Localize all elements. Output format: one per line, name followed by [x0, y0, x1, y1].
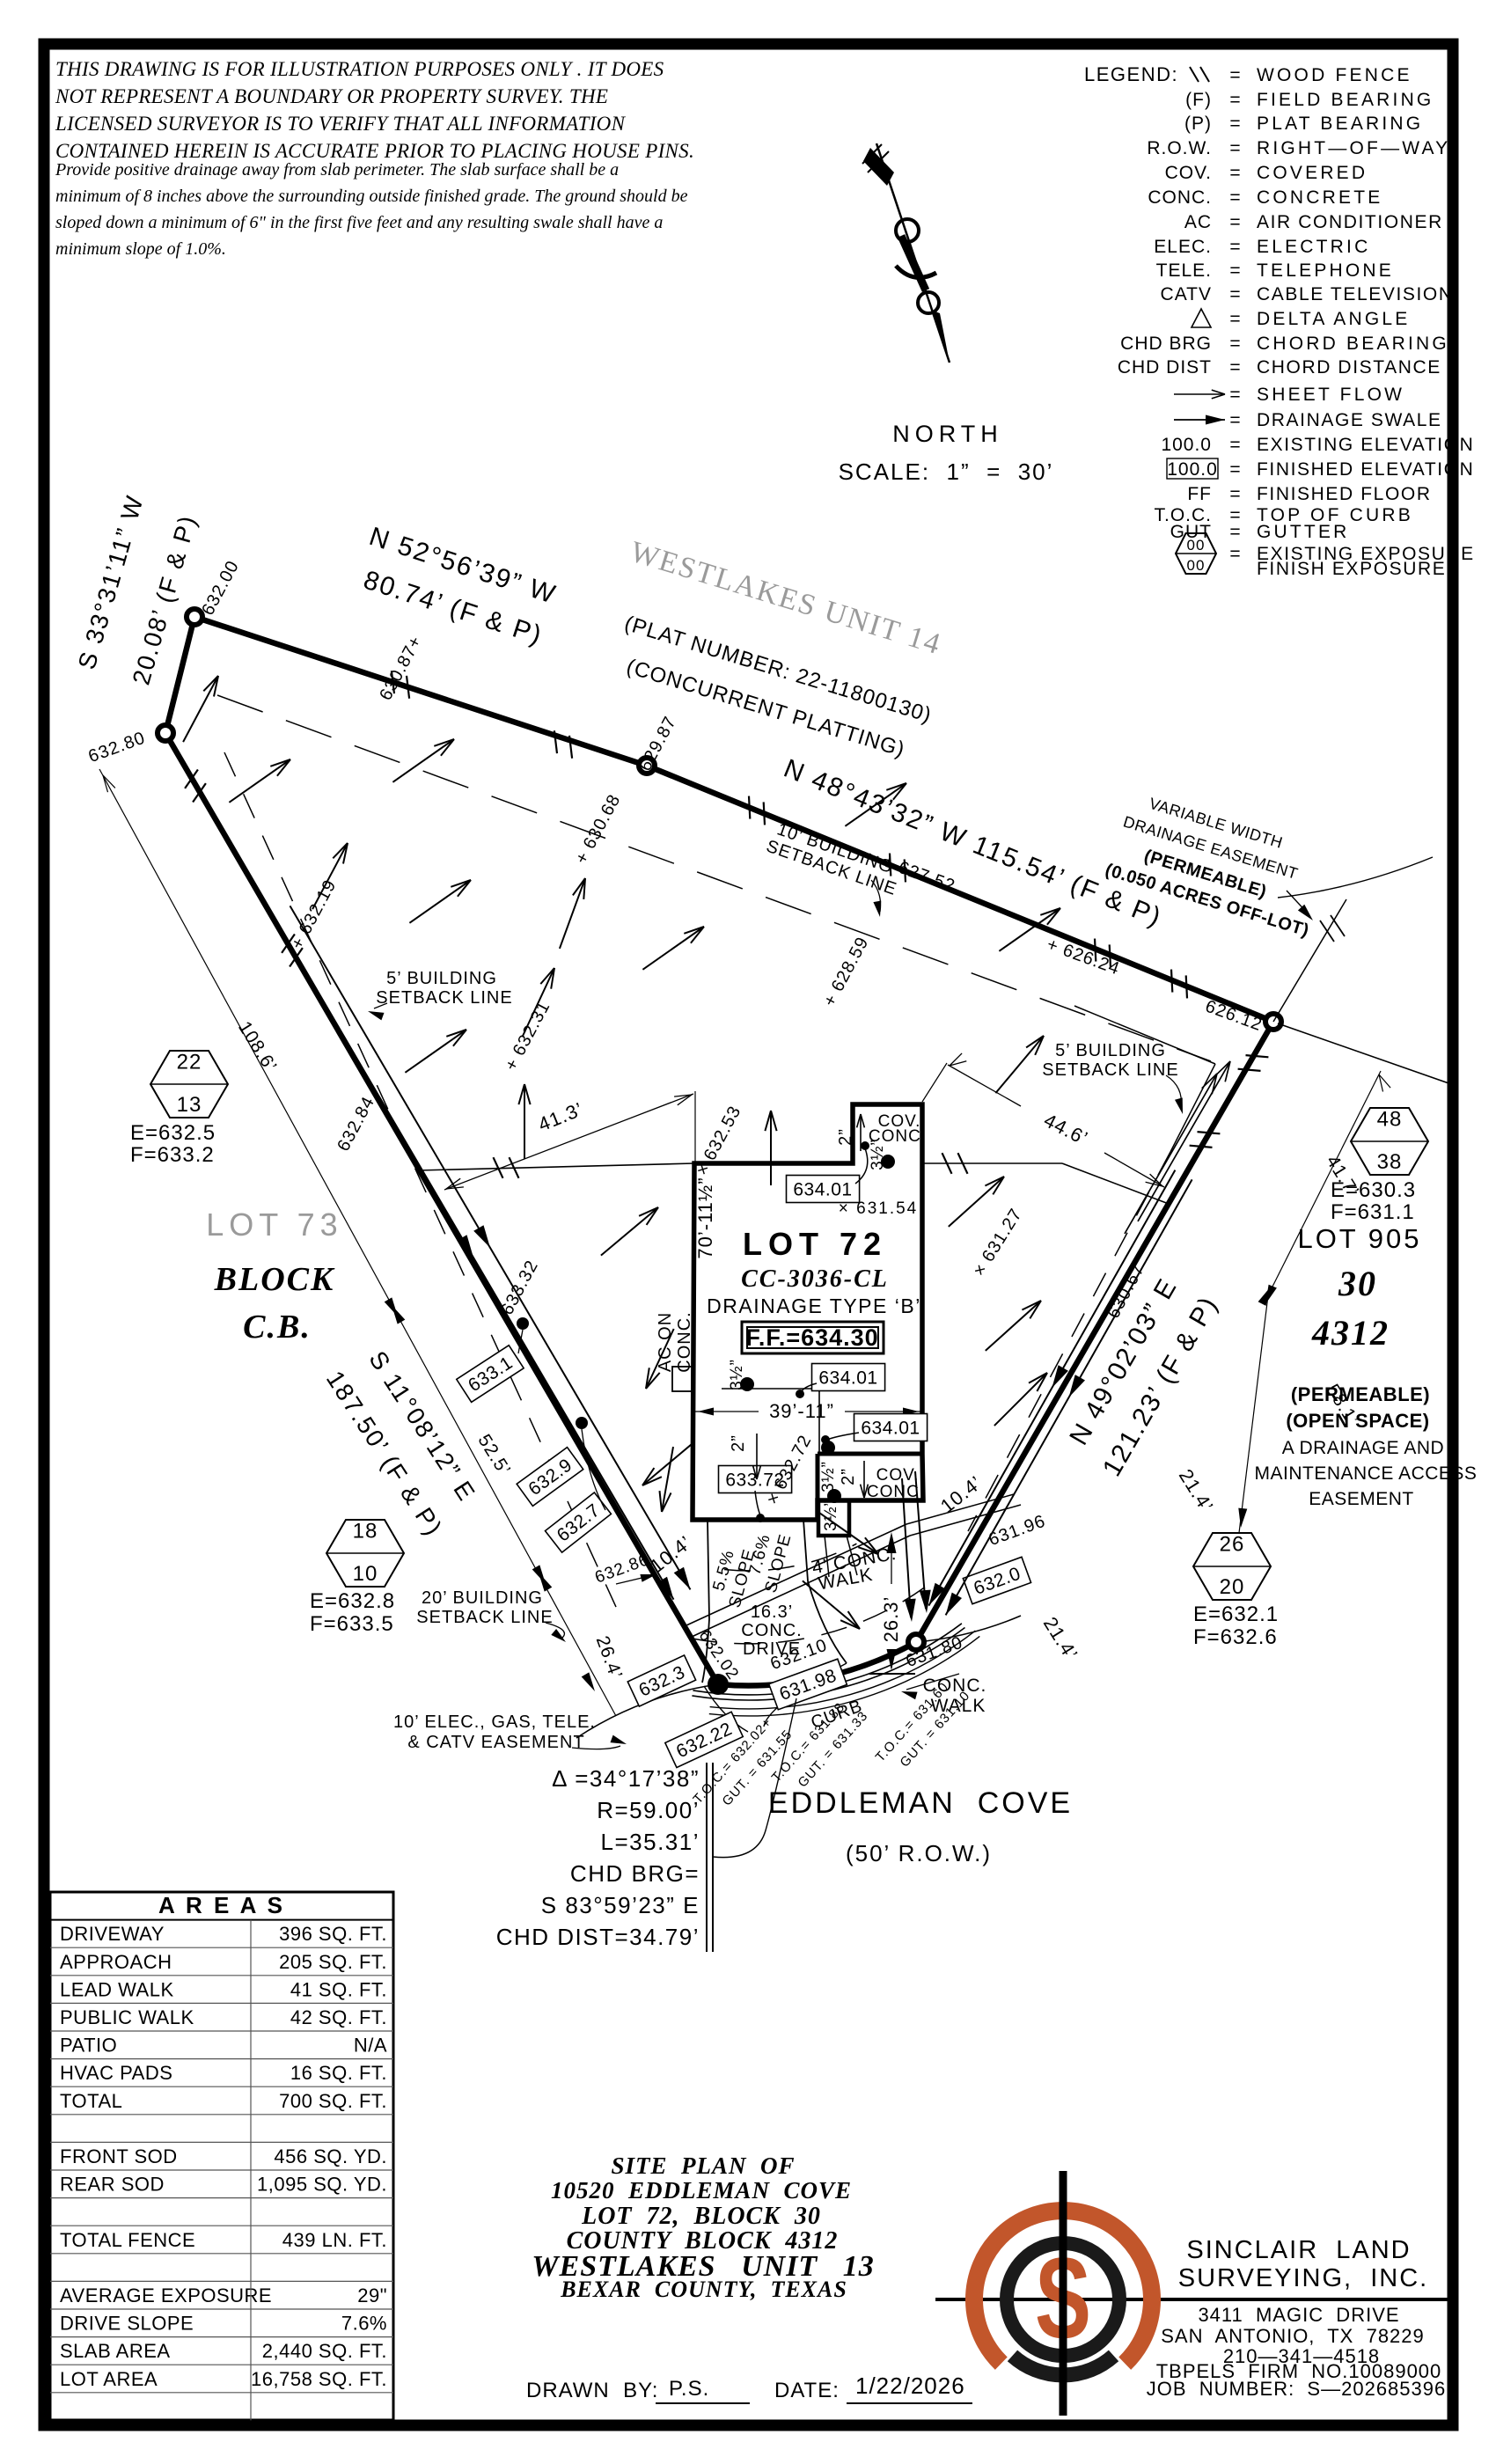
- svg-text:PUBLIC WALK: PUBLIC WALK: [60, 2006, 194, 2028]
- svg-text:(OPEN SPACE): (OPEN SPACE): [1286, 1410, 1429, 1432]
- svg-text:COVERED: COVERED: [1257, 163, 1368, 183]
- svg-text:SLAB AREA: SLAB AREA: [60, 2340, 171, 2362]
- svg-text:AC: AC: [1184, 212, 1212, 232]
- svg-text:A DRAINAGE AND: A DRAINAGE AND: [1282, 1438, 1444, 1458]
- svg-text:CHORD BEARING: CHORD BEARING: [1257, 334, 1449, 354]
- svg-text:=: =: [1229, 334, 1241, 354]
- svg-text:DELTA ANGLE: DELTA ANGLE: [1257, 309, 1410, 329]
- svg-text:E=632.8: E=632.8: [310, 1589, 395, 1613]
- svg-text:=: =: [1229, 65, 1241, 85]
- svg-text:WOOD FENCE: WOOD FENCE: [1257, 65, 1412, 85]
- svg-text:20: 20: [1220, 1575, 1245, 1599]
- svg-text:DRAINAGE TYPE ‘B’: DRAINAGE TYPE ‘B’: [707, 1294, 921, 1317]
- svg-text:AVERAGE EXPOSURE: AVERAGE EXPOSURE: [60, 2284, 272, 2306]
- svg-text:R=59.00’: R=59.00’: [597, 1797, 700, 1823]
- svg-text:205 SQ. FT.: 205 SQ. FT.: [279, 1951, 387, 1973]
- svg-text:=: =: [1229, 484, 1241, 504]
- svg-text:N/A: N/A: [354, 2035, 387, 2057]
- svg-text:BLOCK: BLOCK: [214, 1261, 335, 1298]
- svg-text:R.O.W.: R.O.W.: [1147, 138, 1212, 158]
- svg-text:HVAC PADS: HVAC PADS: [60, 2062, 172, 2084]
- svg-text:16,758 SQ. FT.: 16,758 SQ. FT.: [251, 2368, 387, 2390]
- svg-text:LOT 72, BLOCK 30: LOT 72, BLOCK 30: [581, 2203, 821, 2230]
- svg-text:TOTAL: TOTAL: [60, 2090, 122, 2112]
- svg-text:THIS DRAWING IS FOR ILLUSTRATI: THIS DRAWING IS FOR ILLUSTRATION PURPOSE…: [55, 58, 664, 80]
- svg-text:DRIVEWAY: DRIVEWAY: [60, 1923, 165, 1945]
- svg-text:700 SQ. FT.: 700 SQ. FT.: [279, 2090, 387, 2112]
- svg-text:S 83°59’23” E: S 83°59’23” E: [541, 1892, 700, 1918]
- svg-text:TOTAL FENCE: TOTAL FENCE: [60, 2229, 195, 2251]
- svg-text:CONC.: CONC.: [1148, 187, 1212, 208]
- svg-text:FIELD BEARING: FIELD BEARING: [1257, 90, 1434, 110]
- svg-text:C.B.: C.B.: [243, 1309, 312, 1346]
- svg-text:CONTAINED HEREIN IS ACCURATE P: CONTAINED HEREIN IS ACCURATE PRIOR TO PL…: [55, 140, 694, 162]
- svg-text:TELEPHONE: TELEPHONE: [1257, 260, 1394, 281]
- svg-text:CHORD DISTANCE: CHORD DISTANCE: [1257, 357, 1441, 378]
- svg-text:LOT 72: LOT 72: [743, 1226, 887, 1262]
- svg-text:456 SQ. YD.: 456 SQ. YD.: [274, 2145, 387, 2167]
- svg-text:CHD DIST: CHD DIST: [1118, 357, 1212, 378]
- svg-text:AIR CONDITIONER: AIR CONDITIONER: [1257, 212, 1443, 232]
- svg-text:1/22/2026: 1/22/2026: [855, 2372, 965, 2399]
- svg-text:SHEET FLOW: SHEET FLOW: [1257, 385, 1404, 405]
- svg-text:& CATV EASEMENT: & CATV EASEMENT: [407, 1733, 584, 1752]
- svg-text:REAR SOD: REAR SOD: [60, 2174, 165, 2196]
- svg-text:22: 22: [177, 1050, 202, 1074]
- svg-text:41 SQ. FT.: 41 SQ. FT.: [290, 1978, 387, 2000]
- svg-text:=: =: [1229, 212, 1241, 232]
- svg-text:DATE:: DATE:: [774, 2379, 840, 2402]
- svg-text:2”: 2”: [836, 1128, 855, 1146]
- svg-text:3411 MAGIC DRIVE: 3411 MAGIC DRIVE: [1198, 2304, 1399, 2326]
- svg-text:=: =: [1229, 90, 1241, 110]
- svg-text:× 631.54: × 631.54: [839, 1199, 919, 1218]
- svg-text:FINISH EXPOSURE: FINISH EXPOSURE: [1257, 559, 1446, 579]
- svg-text:3½”: 3½”: [728, 1359, 746, 1390]
- svg-text:4312: 4312: [1311, 1313, 1390, 1353]
- svg-text:E=632.5: E=632.5: [130, 1121, 216, 1145]
- svg-text:F=633.2: F=633.2: [130, 1143, 215, 1167]
- svg-text:LEAD WALK: LEAD WALK: [60, 1978, 174, 2000]
- svg-text:=: =: [1229, 357, 1241, 378]
- svg-text:30: 30: [1338, 1264, 1377, 1303]
- svg-text:=: =: [1229, 260, 1241, 281]
- svg-text:634.01: 634.01: [793, 1179, 852, 1199]
- svg-text:EXISTING ELEVATION: EXISTING ELEVATION: [1257, 435, 1474, 455]
- svg-text:PATIO: PATIO: [60, 2035, 117, 2057]
- svg-text:Provide positive drainage away: Provide positive drainage away from slab…: [55, 160, 619, 180]
- svg-text:FF: FF: [1187, 484, 1212, 504]
- svg-text:F=633.5: F=633.5: [310, 1612, 394, 1636]
- svg-text:SURVEYING, INC.: SURVEYING, INC.: [1178, 2264, 1428, 2292]
- svg-text:F=631.1: F=631.1: [1331, 1200, 1415, 1224]
- svg-text:26: 26: [1220, 1532, 1245, 1556]
- svg-text:5’ BUILDING: 5’ BUILDING: [386, 969, 497, 988]
- svg-text:=: =: [1229, 410, 1241, 430]
- svg-text:GUTTER: GUTTER: [1257, 522, 1350, 542]
- svg-text:EASEMENT: EASEMENT: [1309, 1489, 1414, 1509]
- svg-text:48: 48: [1377, 1107, 1403, 1131]
- svg-text:(PERMEABLE): (PERMEABLE): [1291, 1383, 1430, 1405]
- svg-text:CC-3036-CL: CC-3036-CL: [741, 1265, 889, 1293]
- svg-text:100.0: 100.0: [1167, 459, 1218, 480]
- svg-text:20’ BUILDING: 20’ BUILDING: [422, 1588, 543, 1608]
- svg-text:SETBACK LINE: SETBACK LINE: [1042, 1060, 1178, 1080]
- svg-text:10520 EDDLEMAN COVE: 10520 EDDLEMAN COVE: [551, 2177, 852, 2204]
- svg-text:=: =: [1229, 435, 1241, 455]
- svg-text:SITE PLAN OF: SITE PLAN OF: [611, 2152, 795, 2179]
- svg-text:16 SQ. FT.: 16 SQ. FT.: [290, 2062, 387, 2084]
- svg-text:18: 18: [353, 1519, 378, 1543]
- svg-text:634.01: 634.01: [861, 1418, 920, 1438]
- svg-text:(50’ R.O.W.): (50’ R.O.W.): [846, 1840, 992, 1866]
- svg-text:LOT 73: LOT 73: [206, 1206, 342, 1243]
- svg-text:minimum slope of 1.0%.: minimum slope of 1.0%.: [55, 239, 226, 259]
- svg-text:CHD DIST=34.79’: CHD DIST=34.79’: [496, 1924, 700, 1950]
- svg-text:LOT AREA: LOT AREA: [60, 2368, 158, 2390]
- svg-text:38: 38: [1377, 1150, 1403, 1174]
- svg-text:RIGHT—OF—WAY: RIGHT—OF—WAY: [1257, 138, 1450, 158]
- svg-text:APPROACH: APPROACH: [60, 1951, 172, 1973]
- svg-text:CONC.: CONC.: [741, 1621, 802, 1640]
- svg-text:2”: 2”: [729, 1434, 748, 1452]
- svg-text:=: =: [1229, 284, 1241, 304]
- svg-text:E=630.3: E=630.3: [1331, 1178, 1416, 1202]
- svg-text:3½”: 3½”: [869, 1139, 887, 1170]
- svg-text:ELEC.: ELEC.: [1154, 237, 1212, 257]
- svg-text:42 SQ. FT.: 42 SQ. FT.: [290, 2006, 387, 2028]
- svg-text:CATV: CATV: [1161, 284, 1212, 304]
- svg-text:LOT 905: LOT 905: [1297, 1223, 1421, 1254]
- svg-text:F.F.=634.30: F.F.=634.30: [745, 1324, 878, 1351]
- svg-text:COV.: COV.: [1165, 163, 1212, 183]
- svg-text:P.S.: P.S.: [669, 2377, 709, 2401]
- svg-text:26.3’: 26.3’: [880, 1596, 902, 1643]
- svg-text:LEGEND:: LEGEND:: [1084, 63, 1178, 85]
- svg-text:PLAT BEARING: PLAT BEARING: [1257, 114, 1423, 134]
- svg-text:CONC.: CONC.: [675, 1311, 694, 1372]
- svg-text:E=632.1: E=632.1: [1193, 1602, 1279, 1626]
- svg-text:00: 00: [1187, 537, 1206, 554]
- svg-text:=: =: [1229, 309, 1241, 329]
- svg-text:396 SQ. FT.: 396 SQ. FT.: [279, 1923, 387, 1945]
- svg-text:10’ ELEC., GAS, TELE.: 10’ ELEC., GAS, TELE.: [393, 1712, 596, 1732]
- svg-text:DRIVE SLOPE: DRIVE SLOPE: [60, 2313, 194, 2335]
- svg-text:2”: 2”: [839, 1468, 858, 1485]
- svg-text:CHD BRG: CHD BRG: [1120, 334, 1212, 354]
- svg-text:L=35.31’: L=35.31’: [601, 1829, 700, 1855]
- svg-text:JOB NUMBER: S—202685396: JOB NUMBER: S—202685396: [1147, 2378, 1446, 2400]
- svg-text:sloped down a minimum of 6" in: sloped down a minimum of 6" in the first…: [55, 213, 663, 232]
- svg-text:00: 00: [1187, 557, 1206, 574]
- svg-text:439 LN. FT.: 439 LN. FT.: [282, 2229, 387, 2251]
- svg-text:MAINTENANCE ACCESS: MAINTENANCE ACCESS: [1255, 1463, 1478, 1484]
- svg-text:CABLE TELEVISION: CABLE TELEVISION: [1257, 284, 1454, 304]
- svg-text:=: =: [1229, 187, 1241, 208]
- svg-text:=: =: [1229, 459, 1241, 480]
- svg-text:=: =: [1229, 114, 1241, 134]
- svg-text:SAN ANTONIO, TX 78229: SAN ANTONIO, TX 78229: [1161, 2325, 1425, 2347]
- svg-text:DRAWN BY:: DRAWN BY:: [526, 2379, 658, 2402]
- svg-text:FINISHED FLOOR: FINISHED FLOOR: [1257, 484, 1432, 504]
- svg-text:NORTH: NORTH: [892, 421, 1003, 447]
- svg-text:3½”: 3½”: [819, 1461, 838, 1492]
- svg-text:(F): (F): [1185, 90, 1212, 110]
- svg-text:EDDLEMAN COVE: EDDLEMAN COVE: [768, 1786, 1073, 1820]
- svg-text:TELE.: TELE.: [1156, 260, 1212, 281]
- svg-text:FINISHED ELEVATION: FINISHED ELEVATION: [1257, 459, 1474, 480]
- svg-text:SCALE: 1” = 30’: SCALE: 1” = 30’: [839, 458, 1054, 485]
- svg-text:70’-11½”: 70’-11½”: [694, 1177, 716, 1258]
- svg-text:ELECTRIC: ELECTRIC: [1257, 237, 1370, 257]
- svg-text:16.3’: 16.3’: [751, 1602, 793, 1622]
- svg-text:13: 13: [177, 1093, 202, 1117]
- svg-text:=: =: [1229, 138, 1241, 158]
- svg-text:634.01: 634.01: [818, 1368, 877, 1388]
- svg-text:LICENSED SURVEYOR IS TO VERIFY: LICENSED SURVEYOR IS TO VERIFY THAT ALL …: [55, 113, 627, 135]
- svg-text:5’ BUILDING: 5’ BUILDING: [1055, 1041, 1166, 1060]
- svg-text:F=632.6: F=632.6: [1193, 1625, 1278, 1649]
- svg-text:SETBACK LINE: SETBACK LINE: [376, 988, 512, 1008]
- svg-text:(P): (P): [1184, 114, 1212, 134]
- svg-text:100.0: 100.0: [1161, 435, 1212, 455]
- svg-text:A R E A S: A R E A S: [158, 1892, 285, 1918]
- svg-text:=: =: [1229, 522, 1241, 542]
- svg-text:DRAINAGE SWALE: DRAINAGE SWALE: [1257, 410, 1442, 430]
- svg-text:COV.: COV.: [876, 1466, 920, 1485]
- svg-text:=: =: [1229, 544, 1241, 564]
- svg-text:10: 10: [353, 1562, 378, 1586]
- svg-text:1,095 SQ. YD.: 1,095 SQ. YD.: [257, 2174, 387, 2196]
- svg-text:7.6%: 7.6%: [341, 2313, 387, 2335]
- svg-text:Δ =34°17’38”: Δ =34°17’38”: [552, 1765, 700, 1792]
- svg-text:=: =: [1229, 163, 1241, 183]
- svg-text:CHD BRG=: CHD BRG=: [570, 1860, 700, 1887]
- svg-text:=: =: [1229, 237, 1241, 257]
- svg-text:29": 29": [357, 2284, 387, 2306]
- svg-text:2,440 SQ. FT.: 2,440 SQ. FT.: [262, 2340, 387, 2362]
- svg-text:39’-11”: 39’-11”: [769, 1400, 834, 1422]
- svg-text:CONCRETE: CONCRETE: [1257, 187, 1382, 208]
- svg-text:SETBACK LINE: SETBACK LINE: [416, 1608, 553, 1627]
- svg-text:NOT REPRESENT A BOUNDARY OR PR: NOT REPRESENT A BOUNDARY OR PROPERTY SUR…: [55, 85, 608, 107]
- svg-text:BEXAR COUNTY, TEXAS: BEXAR COUNTY, TEXAS: [560, 2277, 847, 2302]
- svg-text:minimum of 8 inches above the: minimum of 8 inches above the surroundin…: [55, 187, 688, 206]
- svg-text:FRONT SOD: FRONT SOD: [60, 2145, 178, 2167]
- svg-text:SINCLAIR LAND: SINCLAIR LAND: [1186, 2236, 1411, 2264]
- svg-text:=: =: [1229, 385, 1241, 405]
